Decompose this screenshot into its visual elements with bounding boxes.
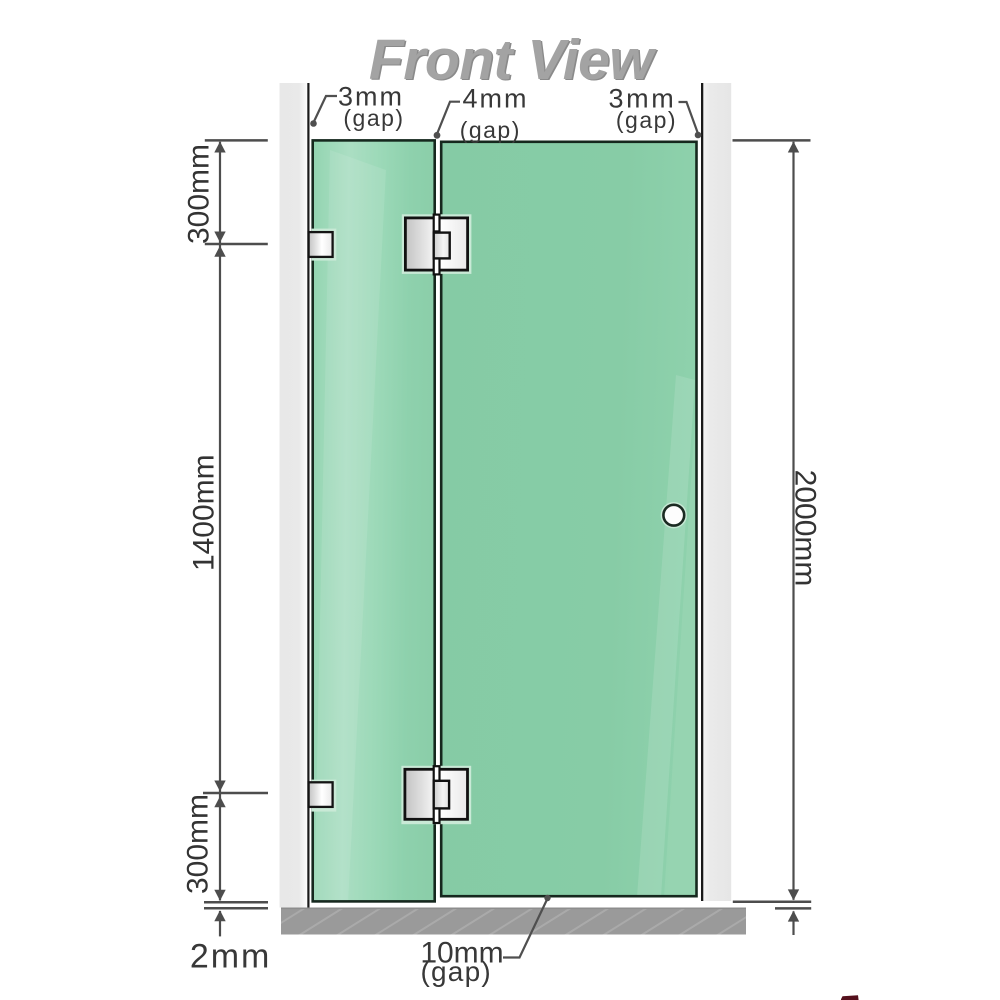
svg-text:(gap): (gap) bbox=[421, 956, 492, 987]
svg-text:Front View: Front View bbox=[369, 28, 657, 92]
svg-text:(gap): (gap) bbox=[616, 107, 677, 133]
svg-text:2mm: 2mm bbox=[190, 938, 272, 976]
svg-text:2000mm: 2000mm bbox=[789, 470, 822, 587]
svg-text:1400mm: 1400mm bbox=[188, 454, 221, 571]
svg-text:(gap): (gap) bbox=[343, 105, 404, 131]
svg-text:300mm: 300mm bbox=[182, 794, 215, 894]
svg-text:4mm: 4mm bbox=[463, 83, 529, 113]
svg-text:(gap): (gap) bbox=[460, 117, 521, 143]
svg-text:300mm: 300mm bbox=[183, 144, 216, 244]
